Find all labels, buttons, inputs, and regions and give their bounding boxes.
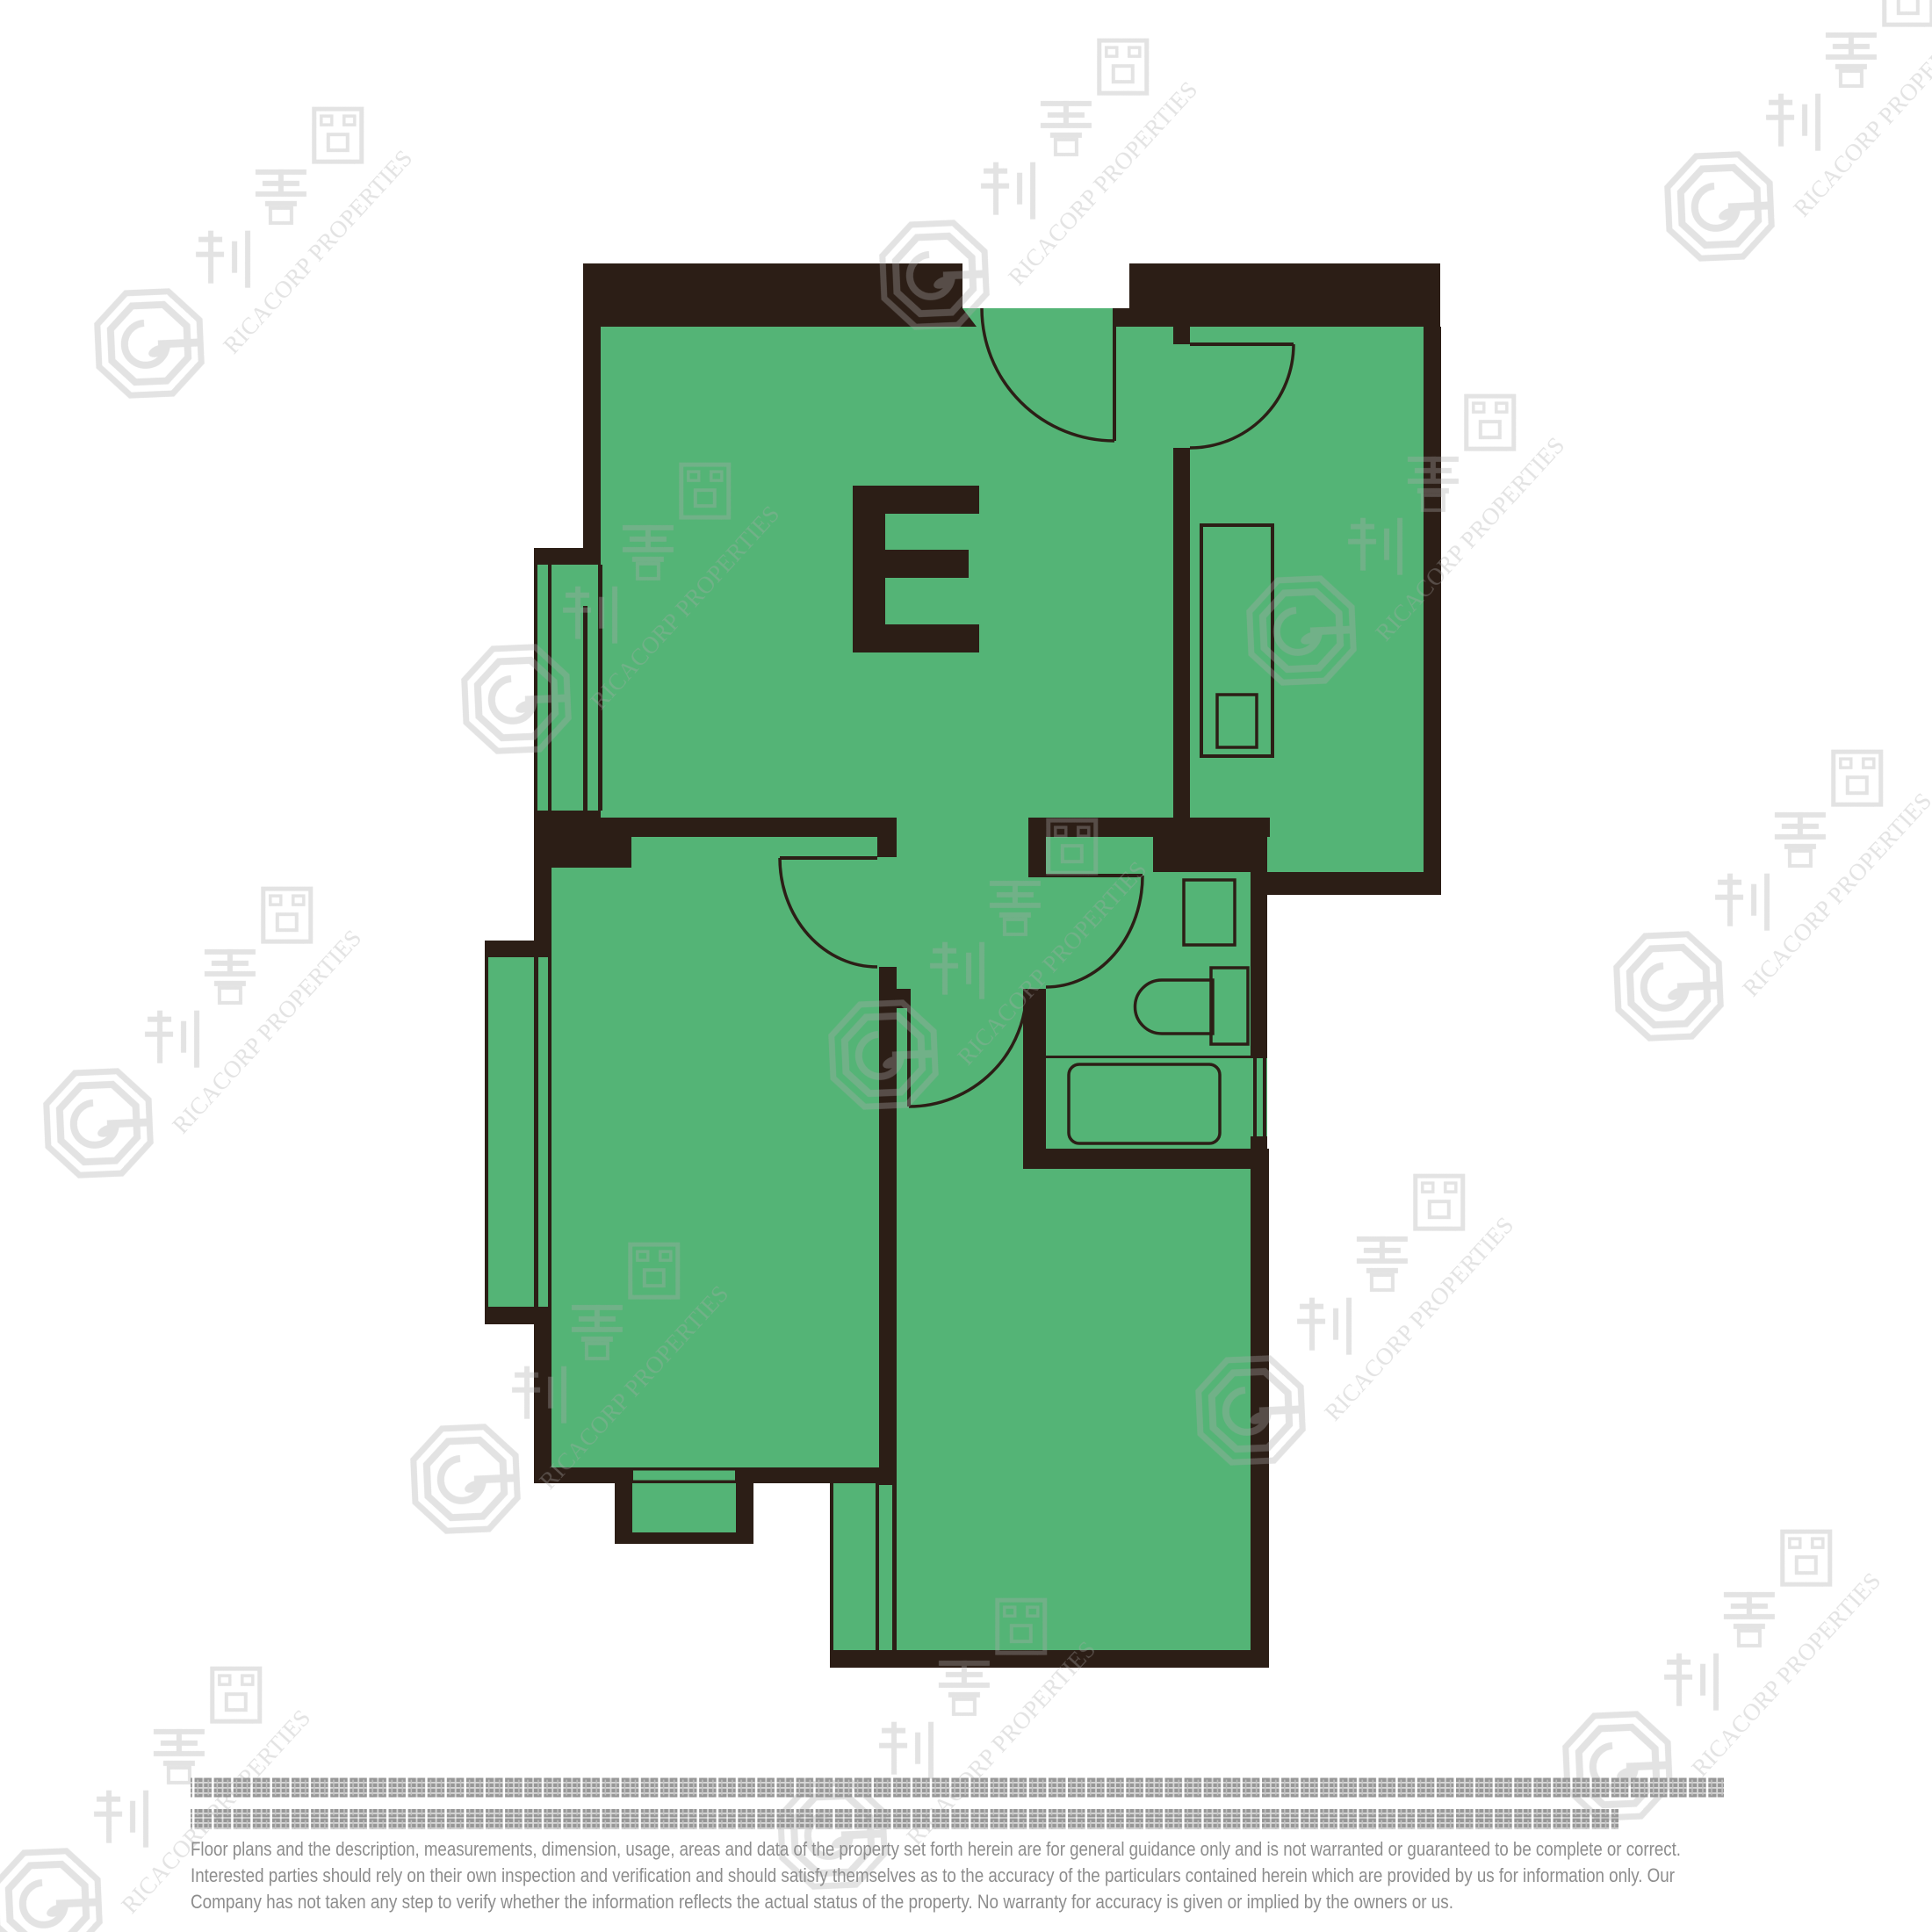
svg-text:Floor plans and the descriptio: Floor plans and the description, measure… bbox=[191, 1838, 1681, 1860]
svg-text:Interested parties should rely: Interested parties should rely on their … bbox=[191, 1864, 1675, 1886]
svg-text:Company has not taken any step: Company has not taken any step to verify… bbox=[191, 1891, 1453, 1913]
